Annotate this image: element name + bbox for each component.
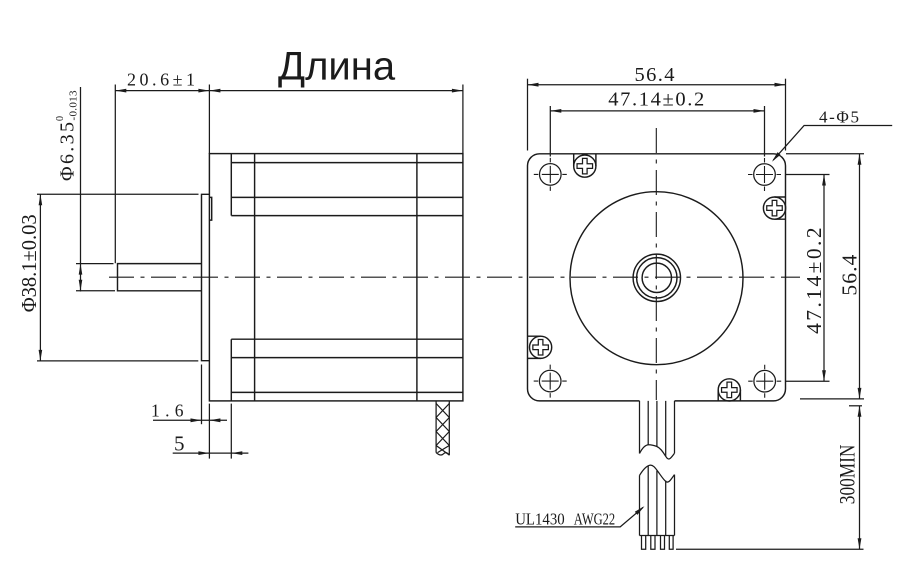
svg-text:47.14±0.2: 47.14±0.2 xyxy=(802,227,826,334)
svg-text:UL1430: UL1430 xyxy=(515,509,565,528)
svg-text:Φ38.1±0.03: Φ38.1±0.03 xyxy=(17,214,41,312)
svg-text:1.6: 1.6 xyxy=(151,401,184,421)
svg-text:300MIN: 300MIN xyxy=(834,445,859,505)
svg-text:AWG22: AWG22 xyxy=(574,509,615,528)
svg-text:47.14±0.2: 47.14±0.2 xyxy=(608,89,704,111)
svg-text:Длина: Длина xyxy=(278,45,396,89)
svg-text:4-Φ5: 4-Φ5 xyxy=(819,107,859,126)
svg-text:Φ6.35: Φ6.35 xyxy=(57,122,79,181)
svg-text:56.4: 56.4 xyxy=(838,254,862,295)
svg-text:0: 0 xyxy=(55,116,66,121)
svg-text:56.4: 56.4 xyxy=(635,64,675,86)
svg-text:5: 5 xyxy=(174,432,185,456)
svg-text:-0.013: -0.013 xyxy=(68,90,80,121)
